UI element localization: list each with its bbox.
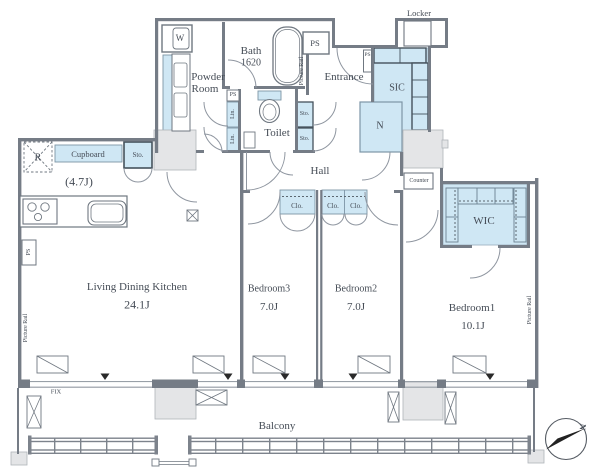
diagonals xyxy=(27,210,486,465)
floor-plan: Locker PS Bath 1620 W Powder Room Pictur… xyxy=(0,0,600,476)
vanity-sink-1 xyxy=(174,63,187,87)
windows xyxy=(18,381,535,388)
corridor-door xyxy=(167,172,197,202)
cupboard-label: Cupboard xyxy=(71,149,105,159)
toilet-cabinet xyxy=(244,132,255,148)
bedroom1-label: Bedroom1 xyxy=(449,302,495,314)
storage-label-e2: Sto. xyxy=(300,136,310,142)
ps-label-toilet: PS xyxy=(230,92,237,98)
bedroom2-size-label: 7.0J xyxy=(347,301,365,313)
ps-label-entrance: PS xyxy=(364,53,371,58)
picture-rail-label-entrance: Picture Rail xyxy=(299,57,305,86)
bath-label: Bath xyxy=(241,45,262,57)
wic-door xyxy=(470,248,500,278)
toilet-label: Toilet xyxy=(264,127,290,139)
bedroom2-door xyxy=(365,192,398,225)
wic-label: WIC xyxy=(473,215,494,227)
sic-label: SIC xyxy=(389,83,405,94)
wic-shelf-top xyxy=(458,188,513,204)
storage-door-1 xyxy=(313,102,336,125)
balcony-label: Balcony xyxy=(259,420,296,432)
bath-size-label: 1620 xyxy=(241,58,261,69)
ldk-size-label: 24.1J xyxy=(124,298,150,313)
locker-label: Locker xyxy=(407,8,431,18)
wic-shelf-left xyxy=(446,188,458,242)
bedroom1-door xyxy=(406,210,438,242)
burner-1 xyxy=(28,203,36,211)
hall-label: Hall xyxy=(311,165,330,177)
n-storage-label: N xyxy=(376,121,383,132)
closet-label-1: Clo. xyxy=(291,202,303,210)
balcony-divider-end-left xyxy=(152,459,159,466)
linen-label-1: Lin. xyxy=(230,109,236,119)
ps-label-ldk: PS xyxy=(26,249,32,256)
kitchen-sto-fold-left xyxy=(124,168,138,182)
storage-door-2 xyxy=(313,128,336,151)
toilet-door xyxy=(270,152,293,175)
washer-label: W xyxy=(176,33,185,43)
picture-rail-label-right: Picture Rail xyxy=(527,296,533,325)
shaft-tab xyxy=(442,140,448,148)
linen-label-2: Lin. xyxy=(230,134,236,144)
storage-label-kitchen: Sto. xyxy=(132,151,143,159)
bedroom3-label: Bedroom3 xyxy=(248,284,290,295)
burner-2 xyxy=(41,203,49,211)
window-markers xyxy=(101,374,495,381)
closet-label-3: Clo. xyxy=(350,202,362,210)
burner-3 xyxy=(34,213,41,220)
shaft-left xyxy=(154,130,196,170)
closet3-fold-left xyxy=(280,214,297,231)
sic-shelf-right xyxy=(412,63,428,130)
fridge-label: R xyxy=(35,153,42,164)
bedroom3-size-label: 7.0J xyxy=(260,301,278,313)
picture-rail-label-left: Picture Rail xyxy=(23,314,29,343)
kitchen-sto-fold-right xyxy=(138,168,152,182)
entrance-label: Entrance xyxy=(324,71,363,83)
storage-label-e1: Sto. xyxy=(300,111,310,117)
vanity-sink-2 xyxy=(174,93,187,117)
ldk-label: Living Dining Kitchen xyxy=(87,281,187,293)
vanity-mirror xyxy=(163,55,172,131)
kitchen-size-label: (4.7J) xyxy=(65,175,93,190)
balcony-railing xyxy=(28,436,531,455)
closet-label-2: Clo. xyxy=(327,202,339,210)
n-storage-door xyxy=(362,152,390,180)
counter-label: Counter xyxy=(409,178,428,184)
bedroom2-label: Bedroom2 xyxy=(335,284,377,295)
fix-window-label: FIX xyxy=(51,389,61,396)
bedroom1-size-label: 10.1J xyxy=(461,320,485,332)
balcony-divider-end-right xyxy=(189,459,196,466)
linen-door-1 xyxy=(204,102,228,126)
toilet-tank xyxy=(258,91,281,100)
shaft-right xyxy=(403,130,443,168)
powder-room-label-2: Room xyxy=(192,83,219,95)
closet3-fold-right xyxy=(297,214,315,231)
powder-room-label-1: Powder xyxy=(191,71,225,83)
ps-label-bath: PS xyxy=(310,38,319,48)
locker-box xyxy=(404,21,431,46)
bedroom3-door xyxy=(248,192,280,224)
